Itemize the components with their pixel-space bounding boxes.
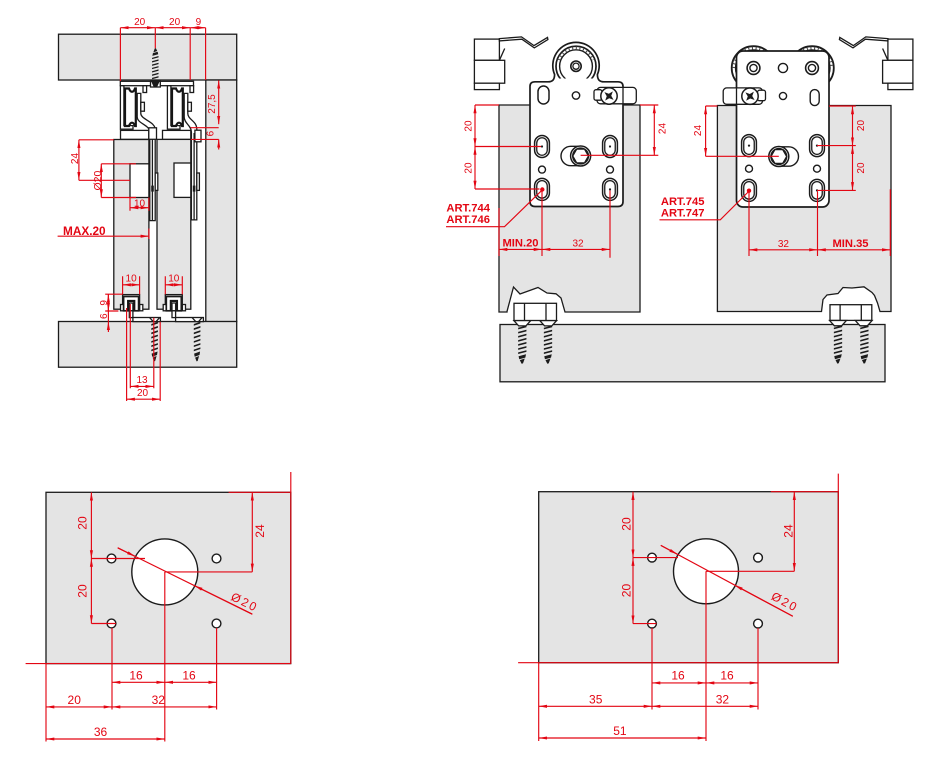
svg-text:9: 9 [196,17,202,28]
svg-text:20: 20 [620,517,634,531]
svg-text:24: 24 [782,524,796,538]
svg-text:24: 24 [693,125,704,137]
svg-text:20: 20 [137,388,149,399]
svg-text:24: 24 [70,153,81,165]
svg-text:36: 36 [94,725,108,739]
svg-text:16: 16 [720,669,734,683]
svg-text:35: 35 [589,692,603,706]
svg-text:6: 6 [206,130,217,136]
svg-text:ART.747: ART.747 [661,207,705,219]
svg-text:20: 20 [68,693,82,707]
svg-text:20: 20 [76,516,90,530]
svg-text:10: 10 [134,199,146,210]
svg-text:13: 13 [136,375,148,386]
svg-text:51: 51 [613,724,627,738]
svg-text:16: 16 [182,668,196,682]
svg-text:24: 24 [253,524,267,538]
svg-text:20: 20 [134,17,146,28]
svg-text:16: 16 [671,669,685,683]
svg-text:10: 10 [168,274,180,285]
svg-text:20: 20 [76,584,90,598]
svg-text:16: 16 [129,668,143,682]
svg-text:20: 20 [856,120,867,132]
svg-text:32: 32 [778,239,790,250]
svg-text:20: 20 [620,584,634,598]
svg-text:20: 20 [169,17,181,28]
svg-text:32: 32 [716,692,730,706]
svg-text:ART.744: ART.744 [446,203,490,215]
svg-text:20: 20 [856,162,867,174]
svg-text:20: 20 [464,120,475,132]
svg-text:10: 10 [126,274,138,285]
svg-text:20: 20 [464,162,475,174]
svg-text:Ø20: Ø20 [92,171,104,191]
svg-text:27,5: 27,5 [207,94,218,114]
svg-text:6: 6 [99,313,110,319]
svg-text:MIN.20: MIN.20 [502,238,538,250]
svg-text:32: 32 [572,239,584,250]
svg-text:ART.746: ART.746 [446,214,490,226]
svg-text:32: 32 [152,693,166,707]
svg-text:ART.745: ART.745 [661,196,705,208]
svg-text:MAX.20: MAX.20 [63,224,106,238]
svg-text:24: 24 [658,123,669,135]
svg-text:9: 9 [99,300,110,306]
svg-text:MIN.35: MIN.35 [832,238,868,250]
